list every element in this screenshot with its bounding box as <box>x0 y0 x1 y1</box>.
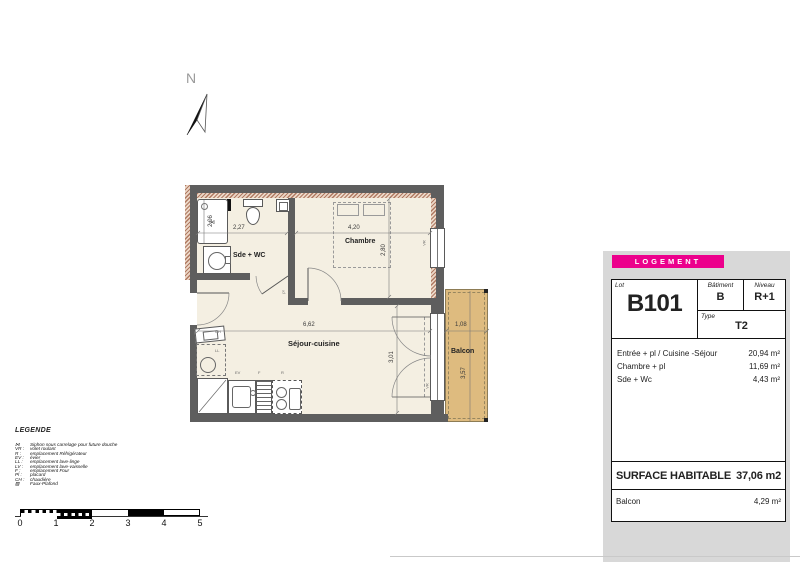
dim-sejour-height: 3,01 <box>389 351 395 363</box>
surface-name: Chambre + pl <box>617 360 665 373</box>
surface-name: Entrée + pl / Cuisine -Séjour <box>617 347 717 360</box>
surface-value: 11,69 m² <box>749 360 780 373</box>
tag-lave-linge: LL <box>215 348 219 353</box>
lot-cell: Lot B101 <box>612 280 698 338</box>
surface-value: 4,43 m² <box>753 373 780 386</box>
dim-sejour-width: 6,62 <box>303 322 315 328</box>
balcon-value: 4,29 m² <box>754 497 781 521</box>
dim-balcon-width: 1,08 <box>455 322 467 328</box>
niveau-label: Niveau <box>746 282 783 289</box>
scale-tick: 0 <box>17 518 22 528</box>
wall-chambre-south-right <box>341 298 431 305</box>
hand-basin <box>276 199 290 212</box>
type-cell: Type T2 <box>698 311 785 338</box>
scale-bar-blocks <box>20 509 200 516</box>
scale-tick: 2 <box>89 518 94 528</box>
batiment-value: B <box>700 291 741 303</box>
type-label: Type <box>701 313 782 320</box>
surface-name: Sde + Wc <box>617 373 652 386</box>
floor-plan-page: N ⋈ <box>0 0 800 566</box>
batiment-label: Bâtiment <box>700 282 741 289</box>
dim-chambre-width: 4,20 <box>348 225 360 231</box>
kitchen-corner-unit <box>197 378 228 414</box>
lot-label: Lot <box>615 282 694 289</box>
faux-plafond-swatch: ▨ <box>15 482 30 486</box>
surface-row: Sde + Wc 4,43 m² <box>617 373 780 386</box>
surface-habitable-label: SURFACE HABITABLE <box>616 470 731 482</box>
dim-sde-width: 2,27 <box>233 225 245 231</box>
lot-number: B101 <box>615 290 694 318</box>
scale-tick: 1 <box>53 518 58 528</box>
sheet-border-line <box>390 556 800 557</box>
balcon-row: Balcon 4,29 m² <box>612 489 785 521</box>
wall-chambre-south-left <box>295 298 308 305</box>
balcony-post-top <box>484 289 488 293</box>
niveau-value: R+1 <box>746 291 783 303</box>
insulation-right-upper <box>431 198 436 228</box>
dim-chambre-height: 2,80 <box>381 244 387 256</box>
kitchen-drainer <box>256 380 272 414</box>
scale-tick: 5 <box>197 518 202 528</box>
wall-left-upper <box>190 185 197 293</box>
legend-title: LEGENDE <box>15 427 225 434</box>
legend: LEGENDE ⋈Siphon sous carrelage pour futu… <box>15 427 225 486</box>
north-label: N <box>186 70 196 86</box>
surface-habitable-row: SURFACE HABITABLE 37,06 m2 <box>612 461 785 489</box>
scale-tick: 4 <box>161 518 166 528</box>
washer-slot <box>196 344 226 376</box>
room-label-sde-wc: Sde + WC <box>233 252 265 259</box>
tag-chaudiere: CH <box>215 329 221 334</box>
bed-pillow-right <box>363 204 385 216</box>
room-label-sejour: Séjour-cuisine <box>288 339 340 348</box>
wall-right-lower <box>431 401 444 422</box>
insulation-top <box>197 193 436 198</box>
surface-value: 20,94 m² <box>748 347 780 360</box>
surface-row: Chambre + pl 11,69 m² <box>617 360 780 373</box>
tag-refrigerateur: R <box>281 370 284 375</box>
surface-list: Entrée + pl / Cuisine -Séjour 20,94 m² C… <box>612 339 785 461</box>
partition-sde-chambre <box>288 198 295 305</box>
surface-row: Entrée + pl / Cuisine -Séjour 20,94 m² <box>617 347 780 360</box>
balcony-railing <box>448 292 485 419</box>
wall-bottom <box>190 414 448 422</box>
surface-habitable-value: 37,06 m2 <box>736 470 781 482</box>
balcon-label: Balcon <box>616 497 640 521</box>
kitchen-cooktop-slot <box>272 380 302 414</box>
dim-balcon-height: 3,57 <box>461 367 467 379</box>
insulation-right-lower <box>431 268 436 298</box>
wall-top <box>190 185 444 193</box>
type-value: T2 <box>698 320 785 332</box>
balcony-french-door <box>430 313 445 401</box>
balcony-post-bottom <box>484 418 488 422</box>
scale-tick: 3 <box>125 518 130 528</box>
wc-tank <box>243 199 263 207</box>
panel-header: LOGEMENT <box>612 255 724 268</box>
batiment-cell: Bâtiment B <box>698 280 744 310</box>
tag-vr-window: VR <box>422 240 427 246</box>
legend-item: ▨Faux-Plafond <box>15 482 225 486</box>
tag-four: F <box>258 370 260 375</box>
dim-shower-height: 2,06 <box>208 215 214 227</box>
niveau-cell: Niveau R+1 <box>744 280 785 310</box>
washbasin-cabinet <box>203 246 231 274</box>
chambre-window <box>430 228 445 268</box>
tag-placard: pl <box>281 290 286 293</box>
kitchen-sink-unit <box>228 380 256 414</box>
tag-evier: EV <box>235 370 240 375</box>
tag-vr-door: VR <box>425 383 430 389</box>
panel-table: Lot B101 Bâtiment B Niveau R+1 <box>611 279 786 522</box>
bed-pillow-left <box>337 204 359 216</box>
wall-sde-south <box>197 273 250 280</box>
logement-panel: LOGEMENT Lot B101 Bâtiment B Niveau <box>603 251 790 562</box>
room-label-chambre: Chambre <box>345 238 375 245</box>
room-label-balcon: Balcon <box>451 348 474 355</box>
